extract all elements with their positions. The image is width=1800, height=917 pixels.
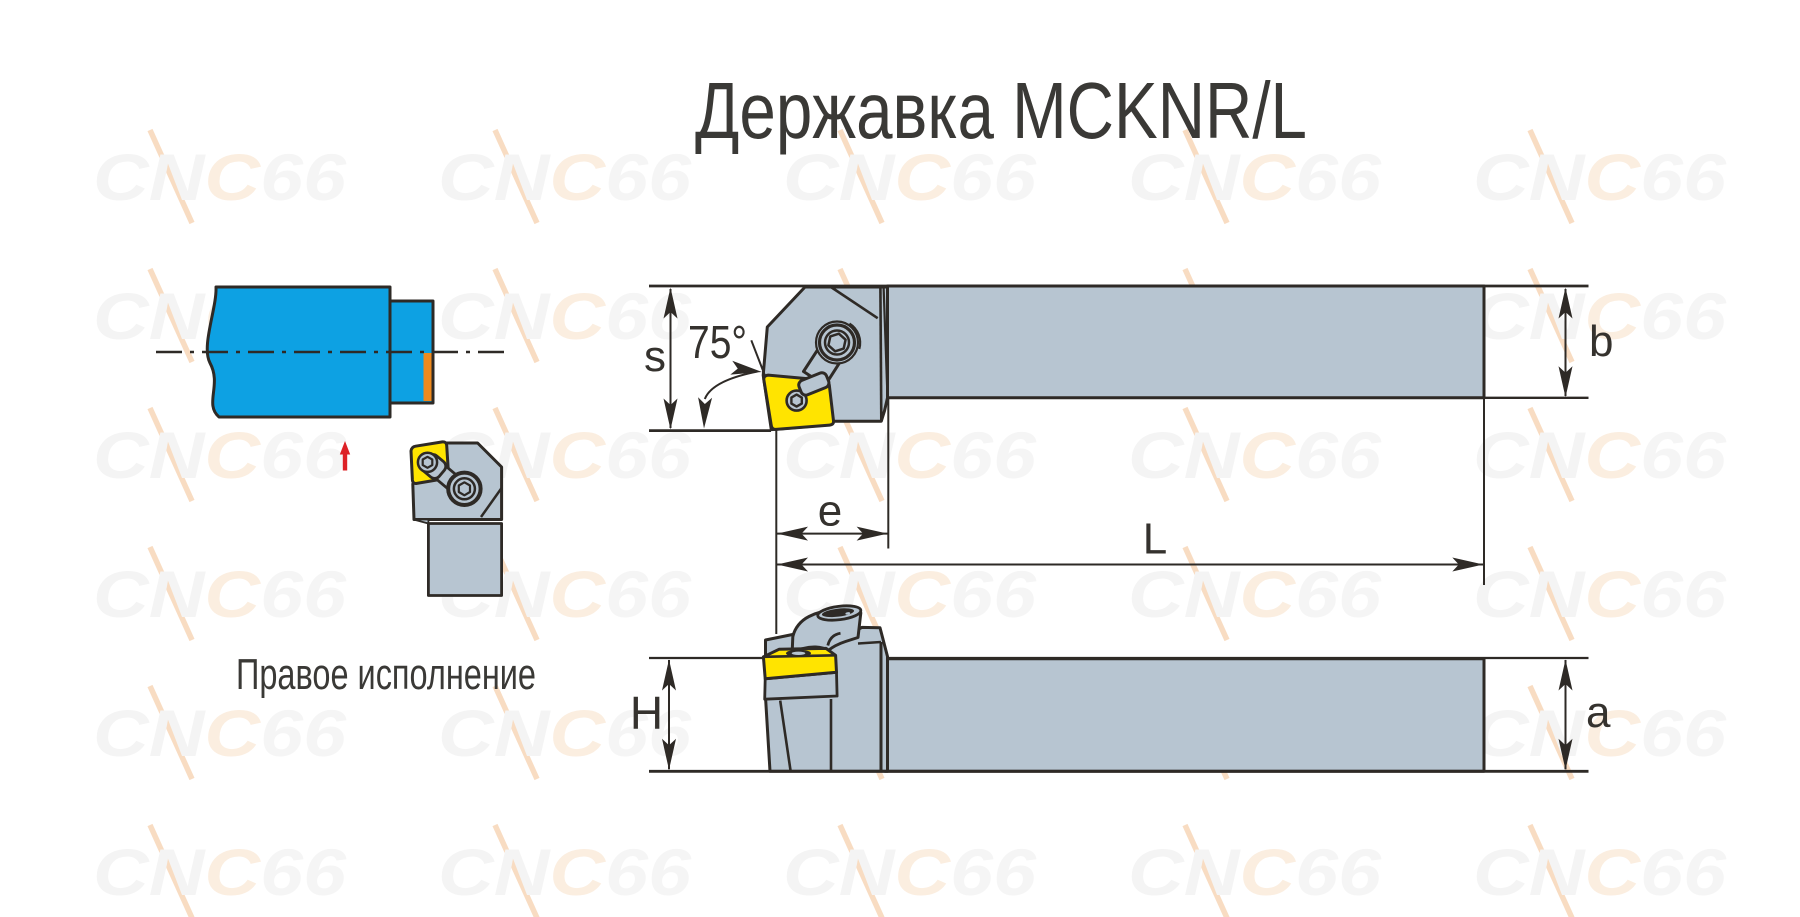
svg-text:H: H <box>630 687 663 739</box>
svg-text:Правое исполнение: Правое исполнение <box>236 650 536 699</box>
svg-text:a: a <box>1586 688 1611 737</box>
svg-text:Державка MCKNR/L: Державка MCKNR/L <box>695 66 1307 155</box>
svg-text:s: s <box>644 332 666 381</box>
svg-text:75°: 75° <box>688 316 747 368</box>
svg-text:L: L <box>1143 515 1167 564</box>
svg-text:b: b <box>1589 317 1613 366</box>
svg-text:e: e <box>818 487 842 536</box>
